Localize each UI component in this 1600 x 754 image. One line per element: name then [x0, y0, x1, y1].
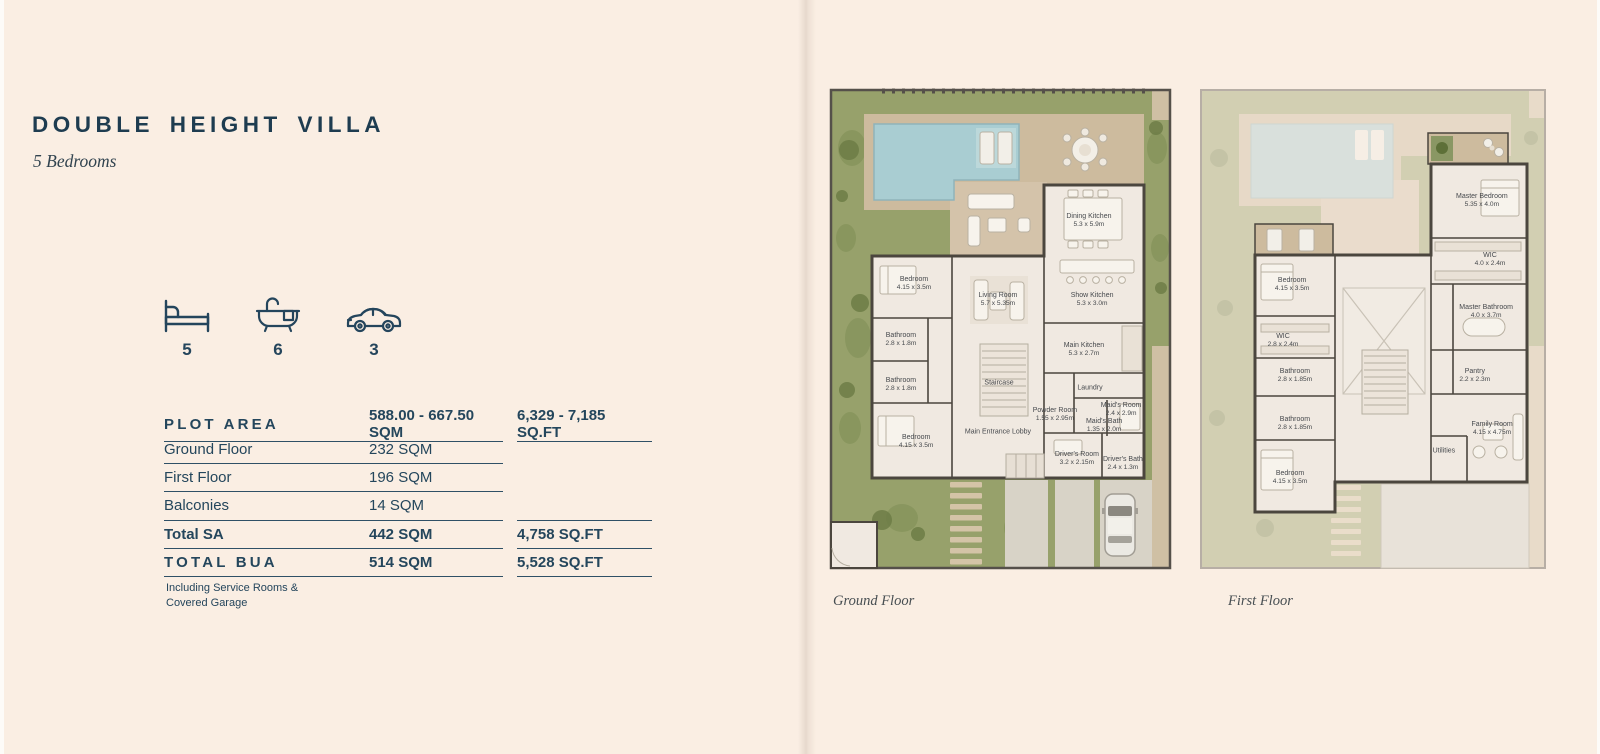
page-subtitle: 5 Bedrooms — [33, 151, 116, 172]
bathtub-icon — [255, 296, 301, 334]
room-label: Driver's Room3.2 x 2.15m — [1055, 450, 1099, 468]
row-sqft: 4,758 SQ.FT — [517, 521, 603, 548]
room-label: Main Entrance Lobby — [965, 428, 1031, 437]
row-sqft: 5,528 SQ.FT — [517, 549, 603, 576]
room-label: WIC4.0 x 2.4m — [1475, 251, 1506, 269]
row-sqm: 14 SQM — [369, 492, 503, 519]
floor-plan-ground: Dining Kitchen5.3 x 5.9mBedroom4.15 x 3.… — [822, 88, 1176, 570]
floor-plan-first: Master Bedroom5.35 x 4.0mWIC4.0 x 2.4mBe… — [1195, 88, 1547, 570]
room-label: Powder Room1.55 x 2.95m — [1033, 406, 1077, 424]
room-label: Bathroom2.8 x 1.85m — [1278, 367, 1312, 385]
footnote-line-2: Covered Garage — [166, 596, 298, 611]
table-row-plot-area: PLOT AREA 588.00 - 667.50 SQM 6,329 - 7,… — [164, 407, 652, 435]
row-sqm: 196 SQM — [369, 464, 503, 491]
room-label: Master Bathroom4.0 x 3.7m — [1459, 303, 1513, 321]
room-label: Family Room4.15 x 4.75m — [1471, 420, 1512, 438]
stat-bathrooms: 6 — [252, 296, 304, 360]
page-edge-left — [0, 0, 4, 754]
room-label: Main Kitchen5.3 x 2.7m — [1064, 341, 1104, 359]
room-label: Bathroom2.8 x 1.8m — [886, 331, 917, 349]
room-label: Bedroom4.15 x 3.5m — [897, 275, 931, 293]
room-label: Utilities — [1433, 446, 1456, 455]
row-label: Balconies — [164, 492, 369, 519]
room-label: Bathroom2.8 x 1.8m — [886, 376, 917, 394]
row-label: First Floor — [164, 464, 369, 491]
room-label: Master Bedroom5.35 x 4.0m — [1456, 192, 1508, 210]
bedroom-count: 5 — [158, 340, 216, 360]
table-footnote: Including Service Rooms & Covered Garage — [166, 581, 298, 611]
car-icon — [344, 302, 404, 334]
stat-bedrooms: 5 — [158, 298, 216, 360]
room-label: Living Room5.7 x 5.35m — [978, 291, 1017, 309]
table-row-first-floor: First Floor 196 SQM — [164, 464, 652, 492]
ground-floor-caption: Ground Floor — [833, 593, 914, 610]
room-label: WIC2.8 x 2.4m — [1268, 332, 1299, 350]
first-floor-labels: Master Bedroom5.35 x 4.0mWIC4.0 x 2.4mBe… — [1195, 88, 1547, 570]
row-sqm: 514 SQM — [369, 549, 503, 576]
page-title: DOUBLE HEIGHT VILLA — [32, 112, 385, 138]
table-row-total-sa: Total SA 442 SQM 4,758 SQ.FT — [164, 521, 652, 549]
row-label: Ground Floor — [164, 435, 369, 462]
room-label: Bedroom4.15 x 3.5m — [1273, 469, 1307, 487]
bed-icon — [161, 298, 213, 334]
room-label: Pantry2.2 x 2.3m — [1459, 367, 1490, 385]
table-row-ground-floor: Ground Floor 232 SQM — [164, 435, 652, 463]
ground-floor-labels: Dining Kitchen5.3 x 5.9mBedroom4.15 x 3.… — [822, 88, 1176, 570]
row-label: Total SA — [164, 521, 369, 548]
room-label: Maid's Bath1.35 x 2.0m — [1086, 417, 1122, 435]
room-label: Bedroom4.15 x 3.5m — [899, 433, 933, 451]
first-floor-caption: First Floor — [1228, 593, 1293, 610]
row-sqm: 442 SQM — [369, 521, 503, 548]
table-row-balconies: Balconies 14 SQM — [164, 492, 652, 520]
row-sqm: 232 SQM — [369, 435, 503, 462]
stat-parking: 3 — [342, 302, 406, 360]
bathroom-count: 6 — [252, 340, 304, 360]
footnote-line-1: Including Service Rooms & — [166, 581, 298, 596]
parking-count: 3 — [342, 340, 406, 360]
table-row-total-bua: TOTAL BUA 514 SQM 5,528 SQ.FT — [164, 549, 652, 577]
brochure-page: DOUBLE HEIGHT VILLA 5 Bedrooms 5 6 — [0, 0, 1600, 754]
page-gutter-shadow — [798, 0, 816, 754]
room-label: Bedroom4.15 x 3.5m — [1275, 276, 1309, 294]
room-label: Driver's Bath2.4 x 1.3m — [1103, 455, 1143, 473]
room-label: Staircase — [984, 378, 1013, 387]
room-label: Show Kitchen5.3 x 3.0m — [1071, 291, 1114, 309]
room-label: Laundry — [1077, 383, 1102, 392]
room-label: Dining Kitchen5.3 x 5.9m — [1066, 212, 1111, 230]
room-label: Bathroom2.8 x 1.85m — [1278, 415, 1312, 433]
row-label: TOTAL BUA — [164, 549, 369, 576]
area-table: PLOT AREA 588.00 - 667.50 SQM 6,329 - 7,… — [164, 407, 652, 577]
